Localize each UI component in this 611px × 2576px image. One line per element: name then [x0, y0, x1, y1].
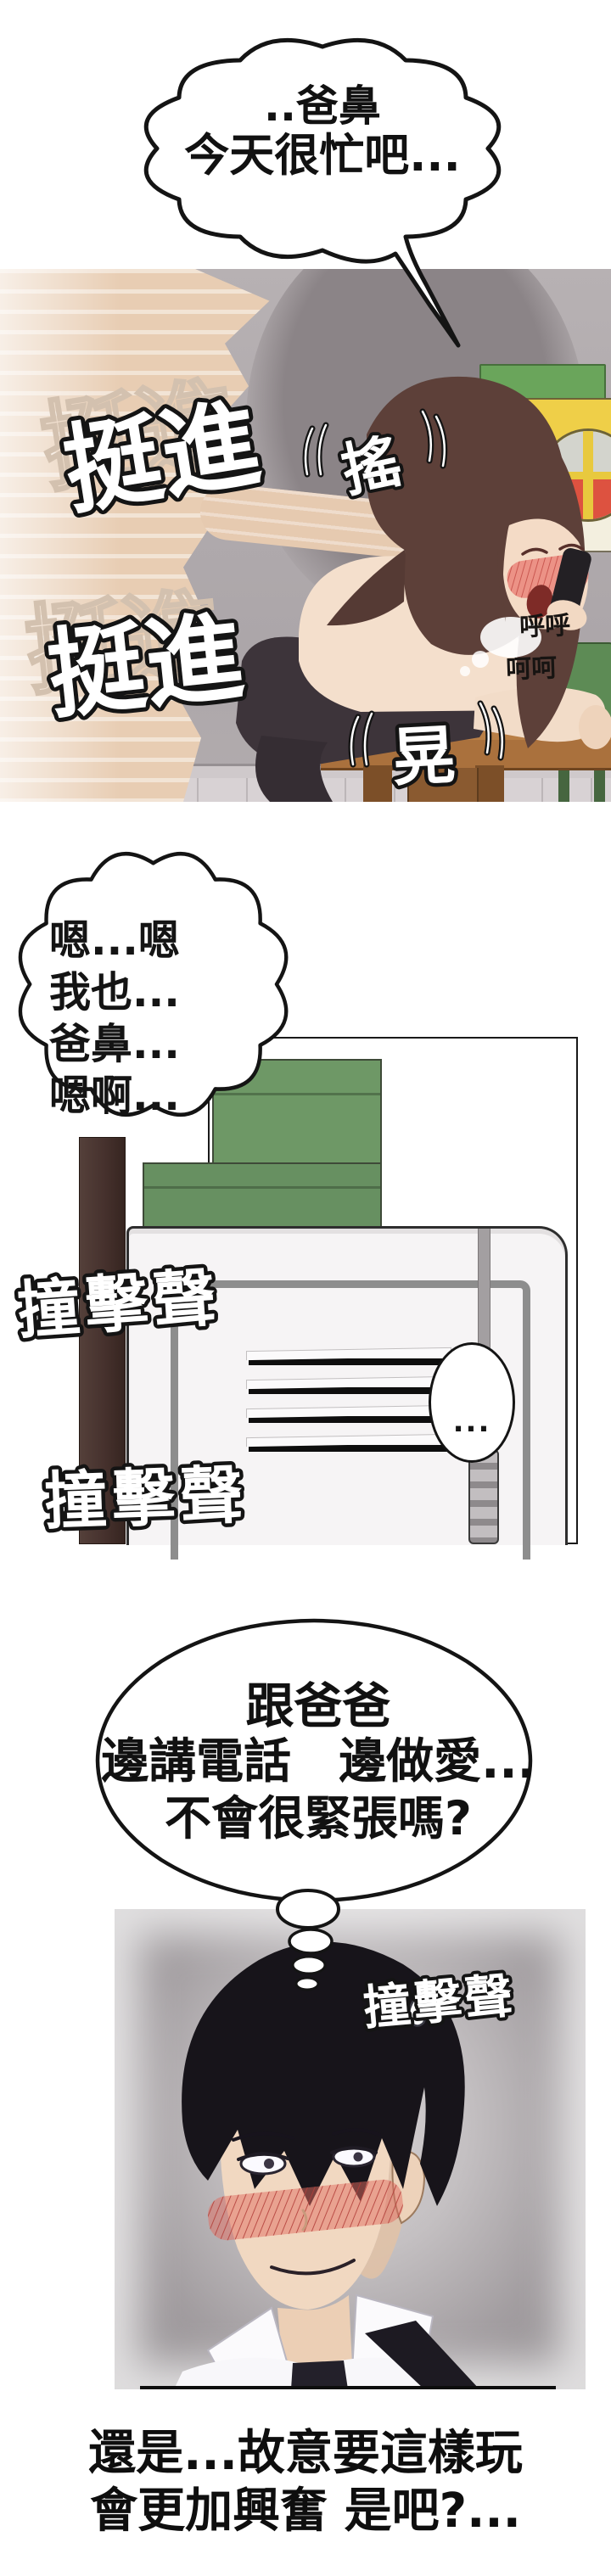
speech-line: 嗯...嗯	[49, 915, 287, 966]
breath-puff-tiny	[460, 666, 470, 676]
man-pupil-left	[264, 2159, 274, 2169]
sfx-text: 撞擊聲	[43, 1459, 249, 1538]
caption-line: 會更加興奮 是吧?...	[0, 2483, 611, 2540]
sfx-text: 挺進	[42, 600, 249, 733]
thought-line: 跟爸爸	[98, 1678, 539, 1734]
ellipsis-bubble: ...	[429, 1342, 515, 1463]
thought-trail-3	[293, 1957, 325, 1974]
stocking-knee	[255, 736, 333, 802]
comic-page: ..爸鼻 今天很忙吧...	[0, 0, 611, 2576]
door-lock-cylinder	[468, 1449, 499, 1544]
sfx-text: 撞擊聲	[15, 1261, 223, 1348]
thought-trail-1	[277, 1890, 339, 1928]
speech-line: 嗯啊...	[49, 1070, 287, 1122]
speech-line: ..爸鼻	[144, 81, 501, 131]
ellipsis-text: ...	[431, 1405, 513, 1439]
narration-caption: 還是...故意要這樣玩 會更加興奮 是吧?...	[0, 2425, 611, 2540]
thought-line: 不會很緊張嗎?	[98, 1790, 539, 1846]
speech-bubble-moan-text: 嗯...嗯 我也... 爸鼻... 嗯啊...	[49, 915, 287, 1122]
thought-trail-2	[289, 1929, 332, 1953]
sfx-text: 撞擊聲	[361, 1968, 518, 2036]
sfx-thrust-2: 挺進 挺進	[21, 557, 310, 727]
undershirt	[291, 2360, 348, 2389]
speech-line: 我也...	[49, 966, 287, 1018]
sfx-bang-3: 撞擊聲	[356, 1956, 552, 2049]
sfx-pant-1: 呼呼	[519, 604, 570, 643]
man-pupil-right	[354, 2153, 363, 2162]
sfx-sway: 晃	[331, 693, 518, 802]
thought-bubble-text: 跟爸爸 邊講電話 邊做愛... 不會很緊張嗎?	[98, 1678, 539, 1846]
caption-line: 還是...故意要這樣玩	[0, 2425, 611, 2483]
sfx-text: 搖	[336, 428, 406, 505]
thought-line: 邊講電話 邊做愛...	[98, 1734, 539, 1790]
speech-line: 今天很忙吧...	[144, 131, 501, 182]
sfx-bang-1: 撞擊聲	[8, 1249, 289, 1351]
panel-bottom-border	[140, 2386, 556, 2389]
speech-bubble-top-text: ..爸鼻 今天很忙吧...	[144, 81, 501, 182]
sfx-shake: 搖	[289, 396, 458, 524]
speech-line: 爸鼻...	[49, 1018, 287, 1070]
sfx-bang-2: 撞擊聲	[34, 1444, 322, 1546]
thought-trail-4	[296, 1978, 318, 1990]
sfx-pant-2: 呵呵	[505, 647, 557, 686]
green-locker-box-lower	[143, 1162, 382, 1229]
sfx-text: 晃	[390, 719, 457, 795]
breath-puff-small	[472, 651, 489, 668]
